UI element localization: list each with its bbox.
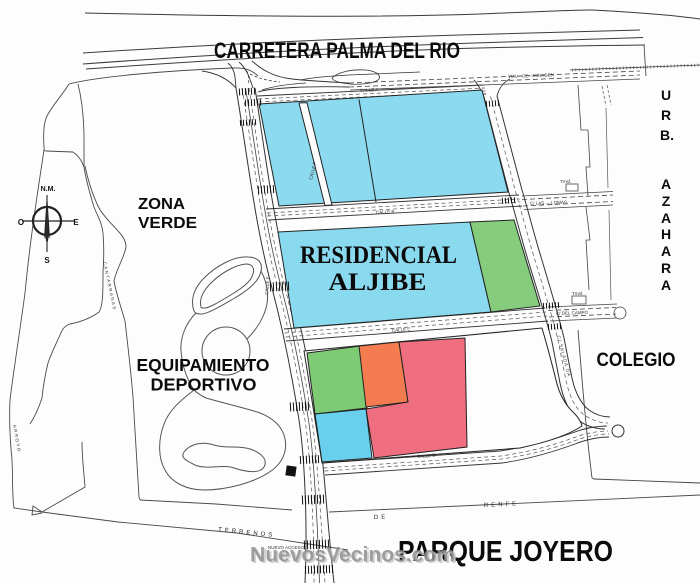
svg-text:U: U [661, 87, 671, 103]
svg-text:A: A [661, 243, 671, 259]
svg-text:EQUIPAMIENTO: EQUIPAMIENTO [137, 355, 270, 375]
svg-text:A: A [661, 210, 671, 226]
svg-text:E: E [73, 218, 79, 227]
svg-text:A: A [661, 176, 671, 192]
svg-text:DEPORTIVO: DEPORTIVO [151, 375, 257, 395]
svg-text:RESIDENCIAL: RESIDENCIAL [300, 242, 457, 269]
svg-text:NuevosVecinos.com: NuevosVecinos.com [250, 543, 455, 567]
svg-text:Trnsf.: Trnsf. [560, 179, 571, 184]
svg-text:A: A [661, 277, 671, 293]
svg-text:CALLE B: CALLE B [376, 209, 395, 215]
svg-text:B.: B. [660, 127, 674, 143]
svg-text:O: O [18, 218, 24, 227]
svg-text:N.M.: N.M. [41, 186, 56, 193]
svg-text:R: R [661, 260, 671, 276]
svg-text:S: S [44, 256, 50, 265]
svg-text:DE: DE [374, 514, 389, 521]
svg-text:VERDE: VERDE [138, 215, 197, 232]
svg-text:COLEGIO: COLEGIO [597, 350, 676, 371]
svg-text:CARRETERA PALMA DEL RIO: CARRETERA PALMA DEL RIO [214, 38, 460, 63]
svg-text:Z: Z [662, 193, 671, 209]
svg-text:ALJIBE: ALJIBE [329, 269, 427, 296]
svg-text:ZONA: ZONA [138, 196, 185, 213]
svg-text:Trnsf.: Trnsf. [572, 291, 583, 296]
svg-text:CALLE A: CALLE A [360, 87, 379, 93]
svg-text:H: H [661, 226, 671, 242]
svg-text:R: R [661, 107, 671, 123]
